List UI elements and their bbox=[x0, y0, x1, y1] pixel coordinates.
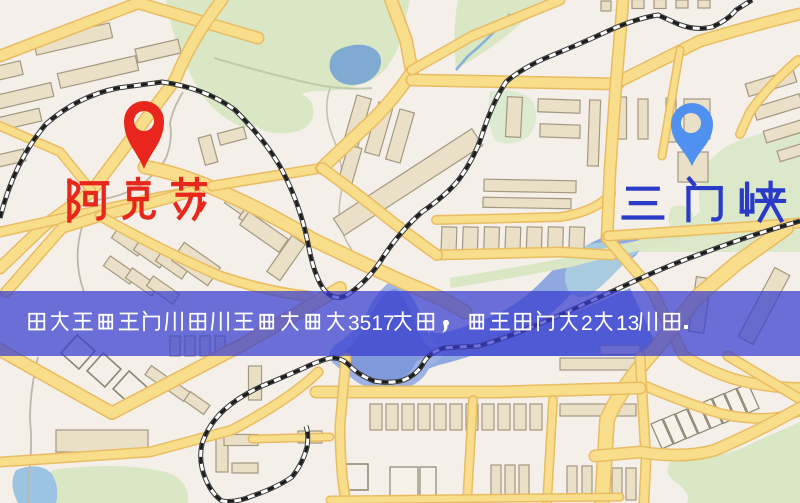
svg-text:13: 13 bbox=[616, 312, 639, 335]
svg-text:2: 2 bbox=[581, 312, 593, 335]
svg-text:3517: 3517 bbox=[348, 312, 395, 335]
